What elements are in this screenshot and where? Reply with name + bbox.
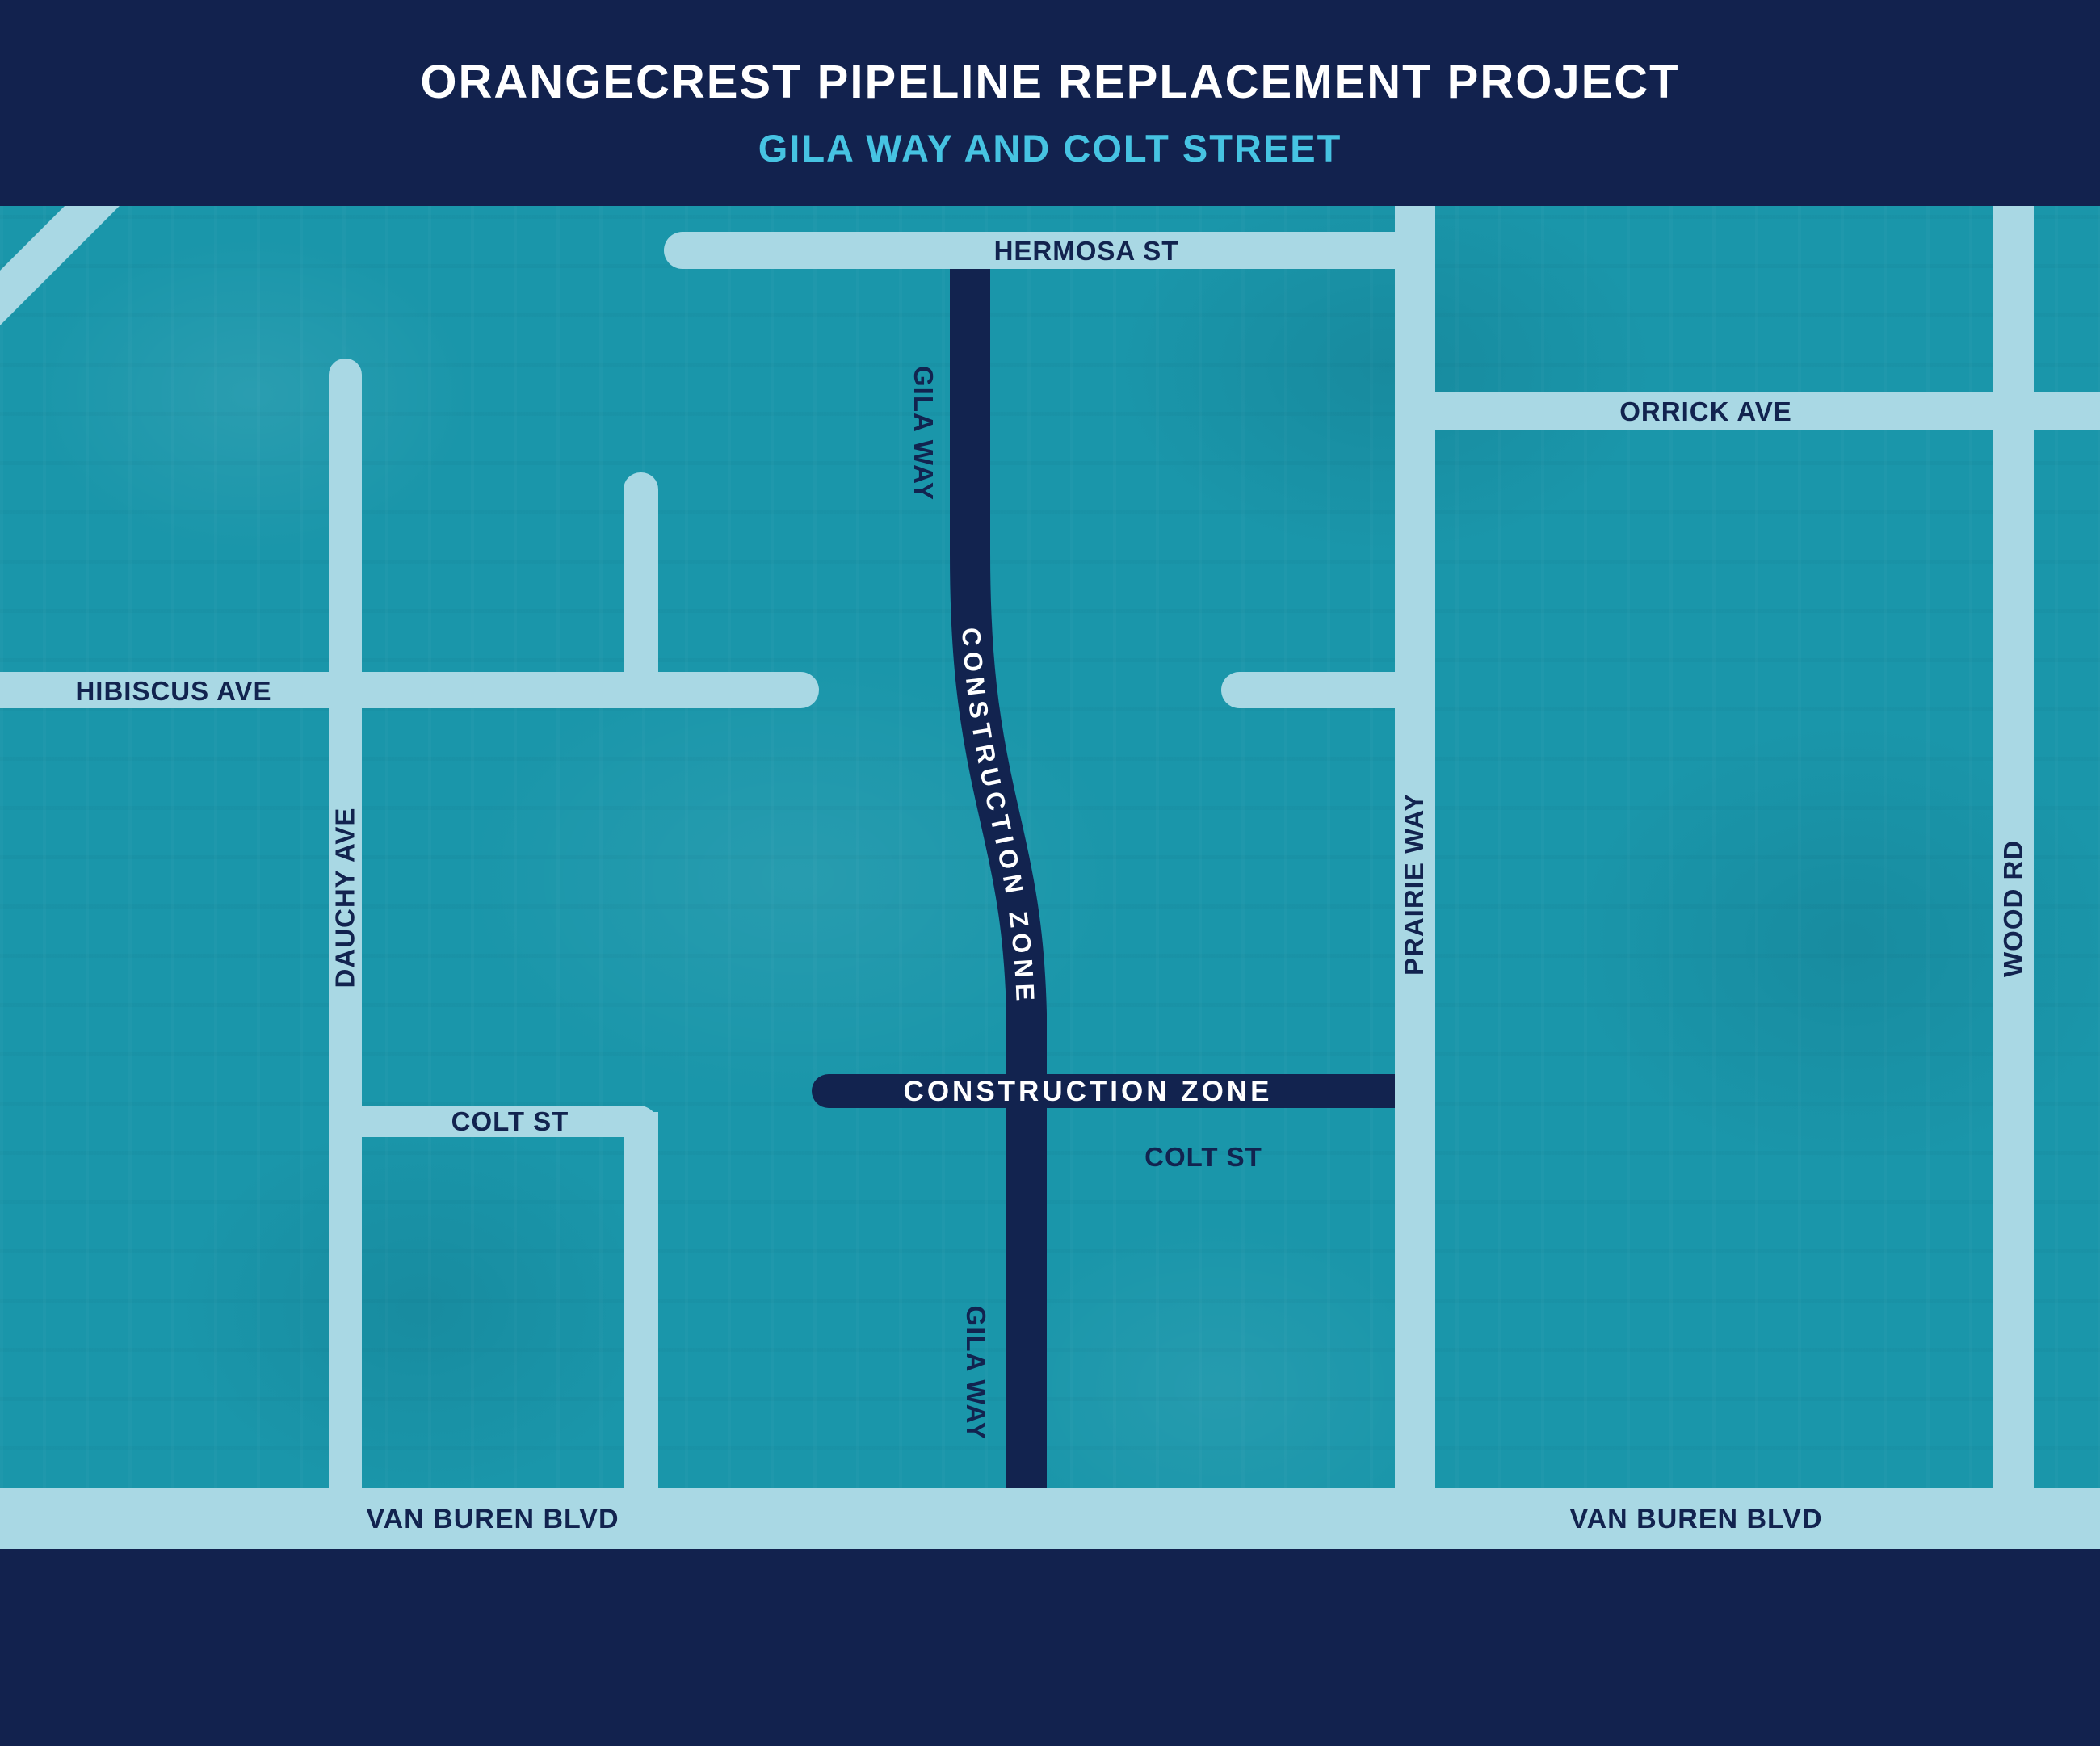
label-wood-rd: WOOD RD xyxy=(1997,840,2030,977)
svg-text:CONSTRUCTION ZONE: CONSTRUCTION ZONE xyxy=(956,627,1040,1007)
label-orrick-ave: ORRICK AVE xyxy=(1524,396,1888,428)
label-dauchy-ave: DAUCHY AVE xyxy=(329,811,362,988)
page-subtitle: GILA WAY AND COLT STREET xyxy=(0,126,2100,170)
label-gila-way-bottom: GILA WAY xyxy=(962,1292,989,1454)
page-title: ORANGECREST PIPELINE REPLACEMENT PROJECT xyxy=(0,55,2100,109)
label-van-buren-left: VAN BUREN BLVD xyxy=(291,1502,695,1536)
label-hermosa-st: HERMOSA ST xyxy=(905,235,1268,267)
flyer-canvas: ORANGECREST PIPELINE REPLACEMENT PROJECT… xyxy=(0,0,2100,1746)
project-map: CONSTRUCTION ZONE CONSTRUCTION ZONE HERM… xyxy=(0,206,2100,1549)
construction-zone-vertical-label: CONSTRUCTION ZONE xyxy=(956,627,1040,1007)
label-gila-way-top: GILA WAY xyxy=(909,366,937,495)
construction-zone-horizontal-label: CONSTRUCTION ZONE xyxy=(829,1077,1346,1110)
header-banner: ORANGECREST PIPELINE REPLACEMENT PROJECT… xyxy=(0,0,2100,206)
label-colt-st-east: COLT ST xyxy=(1082,1141,1325,1173)
label-hibiscus-ave: HIBISCUS AVE xyxy=(0,675,347,707)
label-colt-st-west: COLT ST xyxy=(362,1106,658,1137)
label-van-buren-right: VAN BUREN BLVD xyxy=(1494,1502,1898,1536)
footer-banner: WESTERN WATER QUESTIONS? CONNECT WITH US… xyxy=(0,1549,2100,1746)
label-prairie-way: PRAIRIE WAY xyxy=(1398,798,1430,976)
